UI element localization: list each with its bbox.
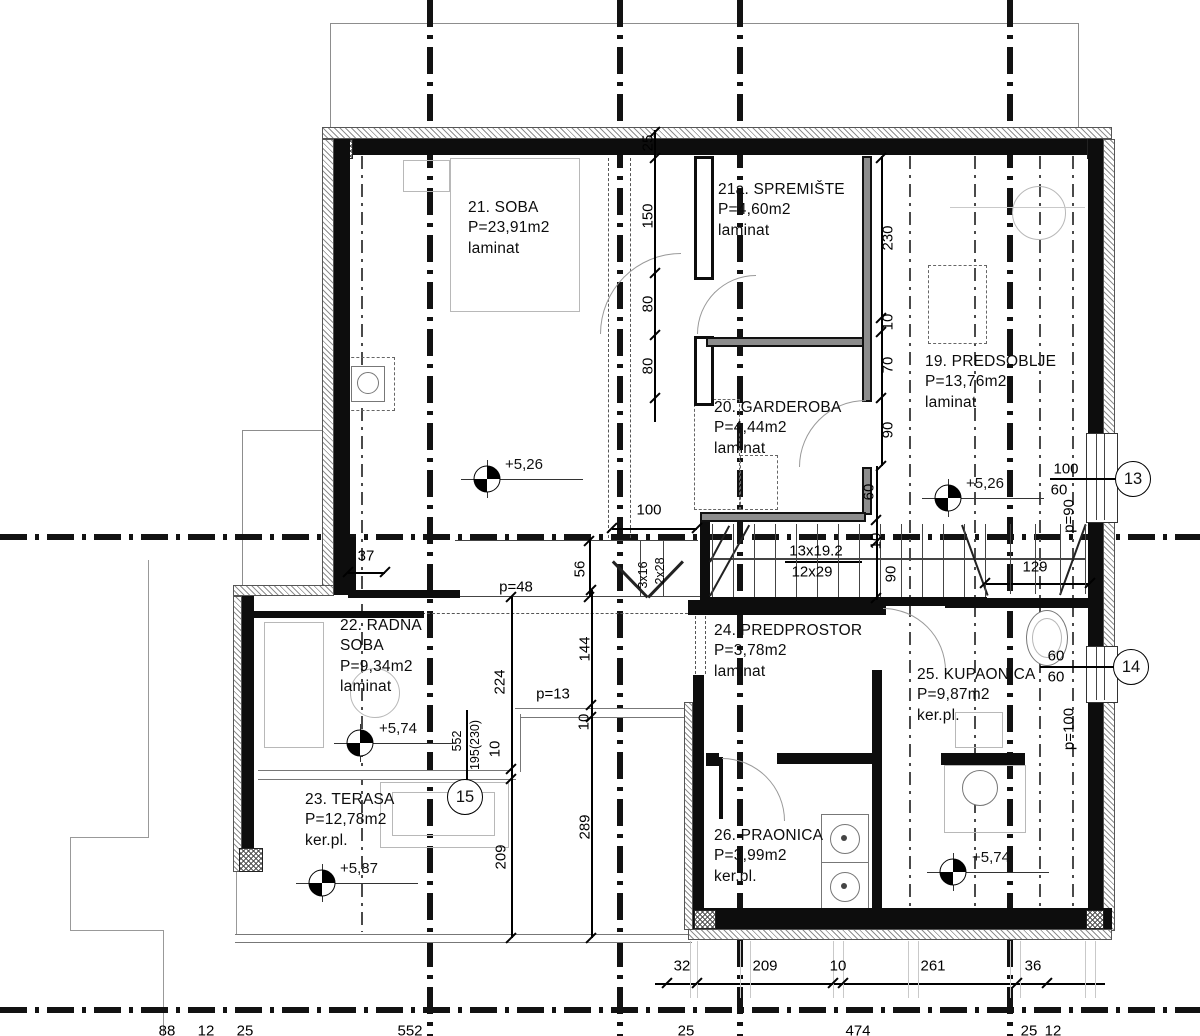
terrain-line <box>70 837 149 838</box>
washbasin <box>962 770 998 806</box>
wall <box>688 908 1112 929</box>
witness-line <box>1010 941 1011 998</box>
wall-insulation <box>322 127 1112 139</box>
wall-corner <box>239 848 263 872</box>
projection-dashed <box>630 158 631 538</box>
stair-tread <box>838 524 839 597</box>
room-name: 20. GARDEROBA <box>714 398 889 418</box>
dim-text: 209 <box>494 844 509 869</box>
ref-line <box>950 207 1085 208</box>
dim-text: 209 <box>752 959 777 974</box>
room-floor: laminat <box>714 662 899 682</box>
position-marker-15: 15 <box>447 779 483 815</box>
dim-text: 10 <box>830 959 847 974</box>
room-label-23: 23. TERASA P=12,78m2 ker.pl. <box>305 790 455 851</box>
window-dim: 100 <box>1053 462 1078 477</box>
floor-plan: 21. SOBA P=23,91m2 laminat 21a. SPREMIŠT… <box>0 0 1200 1036</box>
dim-text: 552 <box>451 731 464 752</box>
grid-line <box>0 1007 1200 1013</box>
room-name: 24. PREDPROSTOR <box>714 621 899 641</box>
opening-dashed <box>695 616 696 674</box>
dim-text: 80 <box>641 358 656 375</box>
door-pivot <box>706 753 719 766</box>
wall-partition <box>700 512 866 522</box>
wall-insulation <box>1103 139 1115 931</box>
witness-line <box>908 941 909 998</box>
stair-tread <box>712 524 713 597</box>
dim-text: 195(230) <box>469 720 482 770</box>
witness-line <box>697 941 698 998</box>
dim-text: 144 <box>578 636 593 661</box>
room-area: P=9,34m2 <box>340 657 452 677</box>
position-marker-14: 14 <box>1113 649 1149 685</box>
stair-tread <box>1010 524 1011 594</box>
window-dim: 60 <box>1048 670 1065 685</box>
wall-insulation <box>233 596 242 872</box>
witness-line <box>740 941 741 998</box>
dim-text: 12 <box>1045 1024 1062 1036</box>
dim-text: p=13 <box>536 687 570 702</box>
stair-text: 2x28 <box>654 557 667 584</box>
wall-partition <box>694 156 714 280</box>
room-name: 22. RADNA SOBA <box>340 616 452 657</box>
opening-dashed <box>705 616 706 674</box>
bath-counter <box>941 753 1025 765</box>
wall <box>945 598 1088 608</box>
elevation-marker-icon <box>474 466 501 493</box>
room-name: 26. PRAONICA <box>714 826 879 846</box>
stair-tread <box>1085 524 1086 594</box>
elevation-text: +5,74 <box>972 849 1010 866</box>
room-area: P=23,91m2 <box>468 218 618 238</box>
window-frame <box>1096 434 1097 520</box>
canopy-outline <box>242 430 326 589</box>
dim-text: p=100 <box>1062 708 1077 750</box>
door-arc <box>600 253 681 334</box>
grid-line-minor <box>1072 156 1074 932</box>
room-label-22: 22. RADNA SOBA P=9,34m2 laminat <box>340 616 452 698</box>
wall <box>693 675 704 908</box>
elevation-marker-icon <box>935 485 962 512</box>
opening-dashed <box>422 613 688 614</box>
room-area: P=4,60m2 <box>718 200 888 220</box>
room-floor: laminat <box>714 439 889 459</box>
elevation-text: +5,87 <box>340 860 378 877</box>
position-marker-13: 13 <box>1115 461 1151 497</box>
dim-text: 12 <box>198 1024 215 1036</box>
witness-line <box>1095 941 1096 998</box>
room-label-21a: 21a. SPREMIŠTE P=4,60m2 laminat <box>718 180 888 241</box>
wall <box>348 537 356 593</box>
dim-text: p=90 <box>1062 499 1077 533</box>
grid-line <box>1007 0 1013 1036</box>
stair-tread <box>943 524 944 597</box>
dim-text: 25 <box>1021 1024 1038 1036</box>
window-dim: 60 <box>1048 649 1065 664</box>
dim-text: 25 <box>641 135 656 152</box>
dim-text: 289 <box>578 814 593 839</box>
stair-tread <box>901 524 902 597</box>
terrain-line <box>236 872 237 935</box>
dim-text: 56 <box>573 561 588 578</box>
window-frame <box>1096 647 1097 700</box>
room-label-26: 26. PRAONICA P=3,99m2 ker.pl. <box>714 826 879 887</box>
room-area: P=3,99m2 <box>714 846 879 866</box>
grid-line <box>617 0 623 1036</box>
stair-tread <box>985 524 986 597</box>
dim-text: 10 <box>488 741 503 758</box>
room-floor: laminat <box>925 393 1100 413</box>
stair-tread <box>964 524 965 597</box>
room-area: P=3,78m2 <box>714 641 899 661</box>
ceiling-fixture <box>1012 186 1066 240</box>
room-name: 21. SOBA <box>468 198 618 218</box>
roof-outline <box>330 23 1079 132</box>
wall-partition <box>706 337 864 347</box>
stair-tread <box>796 524 797 597</box>
dim-text: 224 <box>493 669 508 694</box>
room-area: P=12,78m2 <box>305 810 455 830</box>
grid-line-minor <box>909 156 911 932</box>
dim-line <box>612 528 697 530</box>
wall-insulation <box>684 702 693 930</box>
door-arc <box>722 758 785 821</box>
dim-text: 150 <box>641 203 656 228</box>
witness-line <box>918 941 919 998</box>
step-line <box>460 596 700 597</box>
grid-line-minor <box>1039 156 1041 932</box>
witness-line <box>750 941 751 998</box>
dim-text: 230 <box>881 225 896 250</box>
window-frame <box>1104 434 1105 520</box>
wall <box>700 522 710 605</box>
dim-text: 70 <box>881 357 896 374</box>
stair-tread <box>754 524 755 597</box>
dim-text: 37 <box>358 549 375 564</box>
terrain-line <box>163 930 164 1036</box>
terrace-edge <box>235 934 692 943</box>
room-floor: laminat <box>718 221 888 241</box>
wall-insulation <box>233 585 334 596</box>
room-name: 25. KUPAONICA <box>917 665 1092 685</box>
dim-line <box>985 583 1090 585</box>
room-label-20: 20. GARDEROBA P=4,44m2 laminat <box>714 398 889 459</box>
dim-line <box>1050 478 1116 480</box>
dim-text: 80 <box>641 296 656 313</box>
room-name: 19. PREDSOBLJE <box>925 352 1100 372</box>
dim-text: 90 <box>881 422 896 439</box>
wall <box>777 753 882 764</box>
stair-tread <box>859 524 860 597</box>
dim-text: 261 <box>920 959 945 974</box>
dim-line <box>654 130 656 422</box>
room-label-19: 19. PREDSOBLJE P=13,76m2 laminat <box>925 352 1100 413</box>
elevation-text: +5,74 <box>379 720 417 737</box>
room-floor: ker.pl. <box>305 831 455 851</box>
glass-band <box>515 708 691 718</box>
terrain-line <box>148 560 149 838</box>
dim-text: 60 <box>862 484 877 501</box>
elevation-text: +5,26 <box>966 475 1004 492</box>
grid-line <box>427 0 433 1036</box>
nightstand <box>403 160 450 192</box>
room-floor: laminat <box>340 677 452 697</box>
room-floor: ker.pl. <box>714 867 879 887</box>
stair-tread <box>922 524 923 597</box>
wall-corner <box>1086 910 1104 929</box>
room-area: P=13,76m2 <box>925 372 1100 392</box>
window-frame <box>1104 647 1105 700</box>
terrain-line <box>70 837 71 931</box>
wall <box>348 590 460 598</box>
wall-insulation <box>688 929 1112 940</box>
stair-tread <box>1060 524 1061 594</box>
wall <box>1088 139 1103 931</box>
dim-text: 552 <box>397 1024 422 1036</box>
dim-text: 88 <box>159 1024 176 1036</box>
wardrobe-dashed <box>740 455 778 510</box>
stair-tread <box>775 524 776 597</box>
dim-line <box>348 572 385 574</box>
room-area: P=4,44m2 <box>714 418 889 438</box>
wall-insulation <box>322 139 334 595</box>
dim-line <box>655 983 1105 985</box>
wall-corner <box>694 910 716 929</box>
dim-text: 129 <box>1022 560 1047 575</box>
dim-text: 90 <box>884 566 899 583</box>
dim-text: 32 <box>674 959 691 974</box>
stair-text: 3x16 <box>637 561 650 588</box>
stair-text: 13x19.2 <box>789 544 842 559</box>
elevation-marker-icon <box>347 730 374 757</box>
elevation-marker-icon <box>940 859 967 886</box>
terrain-line <box>70 930 164 931</box>
step-line <box>455 540 698 541</box>
stair-tread <box>817 524 818 597</box>
wall <box>688 600 886 615</box>
room-floor: laminat <box>468 239 618 259</box>
room-name: 23. TERASA <box>305 790 455 810</box>
wall <box>322 139 1112 155</box>
room-label-24: 24. PREDPROSTOR P=3,78m2 laminat <box>714 621 899 682</box>
glass-band <box>258 770 516 780</box>
door-arc <box>697 275 756 334</box>
dim-text: 36 <box>1025 959 1042 974</box>
witness-line <box>1085 941 1086 998</box>
flue-circle <box>357 372 379 394</box>
room-area: P=9,87m2 <box>917 685 1092 705</box>
wall <box>242 596 254 872</box>
elevation-text: +5,26 <box>505 456 543 473</box>
room-label-21: 21. SOBA P=23,91m2 laminat <box>468 198 618 259</box>
stair-text: 12x29 <box>792 565 833 580</box>
dim-text: 474 <box>845 1024 870 1036</box>
elevation-marker-icon <box>309 870 336 897</box>
desk <box>264 622 324 748</box>
wall <box>334 139 350 595</box>
witness-line <box>1020 941 1021 998</box>
stair-tread <box>733 524 734 597</box>
wardrobe-dashed <box>928 265 987 344</box>
dim-text: 25 <box>237 1024 254 1036</box>
dim-text: 25 <box>678 1024 695 1036</box>
window-dim: 60 <box>1051 483 1068 498</box>
room-name: 21a. SPREMIŠTE <box>718 180 888 200</box>
dim-text: 100 <box>636 503 661 518</box>
